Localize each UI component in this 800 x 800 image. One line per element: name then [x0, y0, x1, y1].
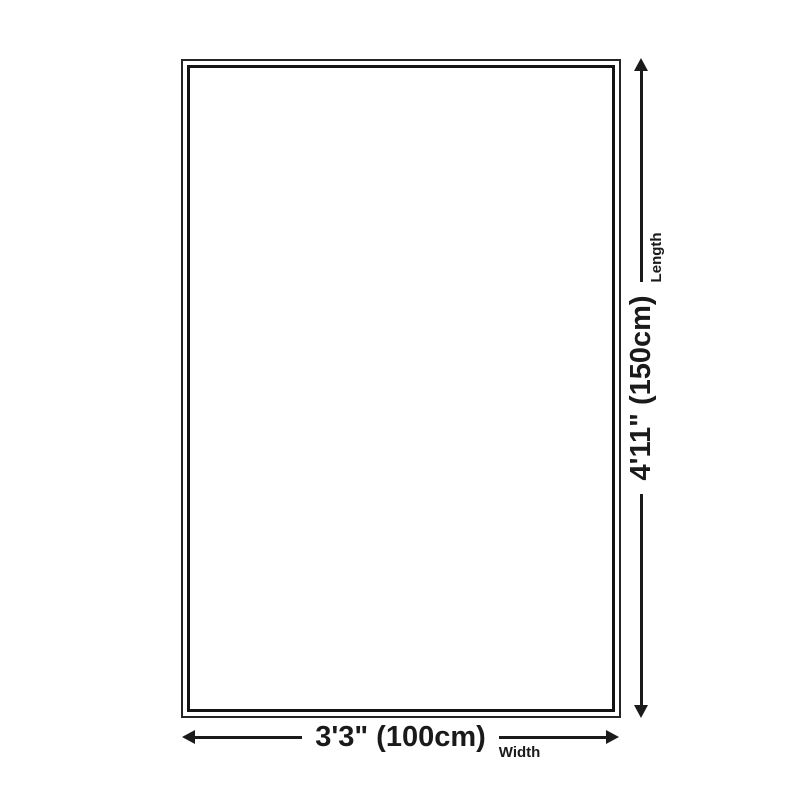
arrow-up-icon	[634, 58, 648, 71]
length-value: 4'11" (150cm)	[627, 295, 656, 480]
length-axis-label: Length	[649, 232, 664, 282]
rug-inner-border	[187, 65, 615, 712]
arrow-right-icon	[606, 730, 619, 744]
width-value: 3'3" (100cm)	[315, 723, 486, 752]
rug-outline	[181, 59, 621, 718]
width-axis-label: Width	[499, 745, 541, 760]
length-arrow-line-lower	[640, 494, 643, 705]
arrow-left-icon	[182, 730, 195, 744]
length-arrow-tail: Length	[618, 71, 664, 282]
length-arrow-line-upper	[640, 71, 643, 282]
dimension-diagram: 4'11" (150cm) Length 3'3" (100cm) Width	[0, 0, 800, 800]
length-dimension: 4'11" (150cm) Length	[618, 58, 664, 718]
arrow-down-icon	[634, 705, 648, 718]
width-arrow-line-right	[499, 736, 606, 739]
width-arrow-line-left	[195, 736, 302, 739]
width-arrow-tail: Width	[499, 713, 606, 761]
width-dimension: 3'3" (100cm) Width	[182, 713, 619, 761]
